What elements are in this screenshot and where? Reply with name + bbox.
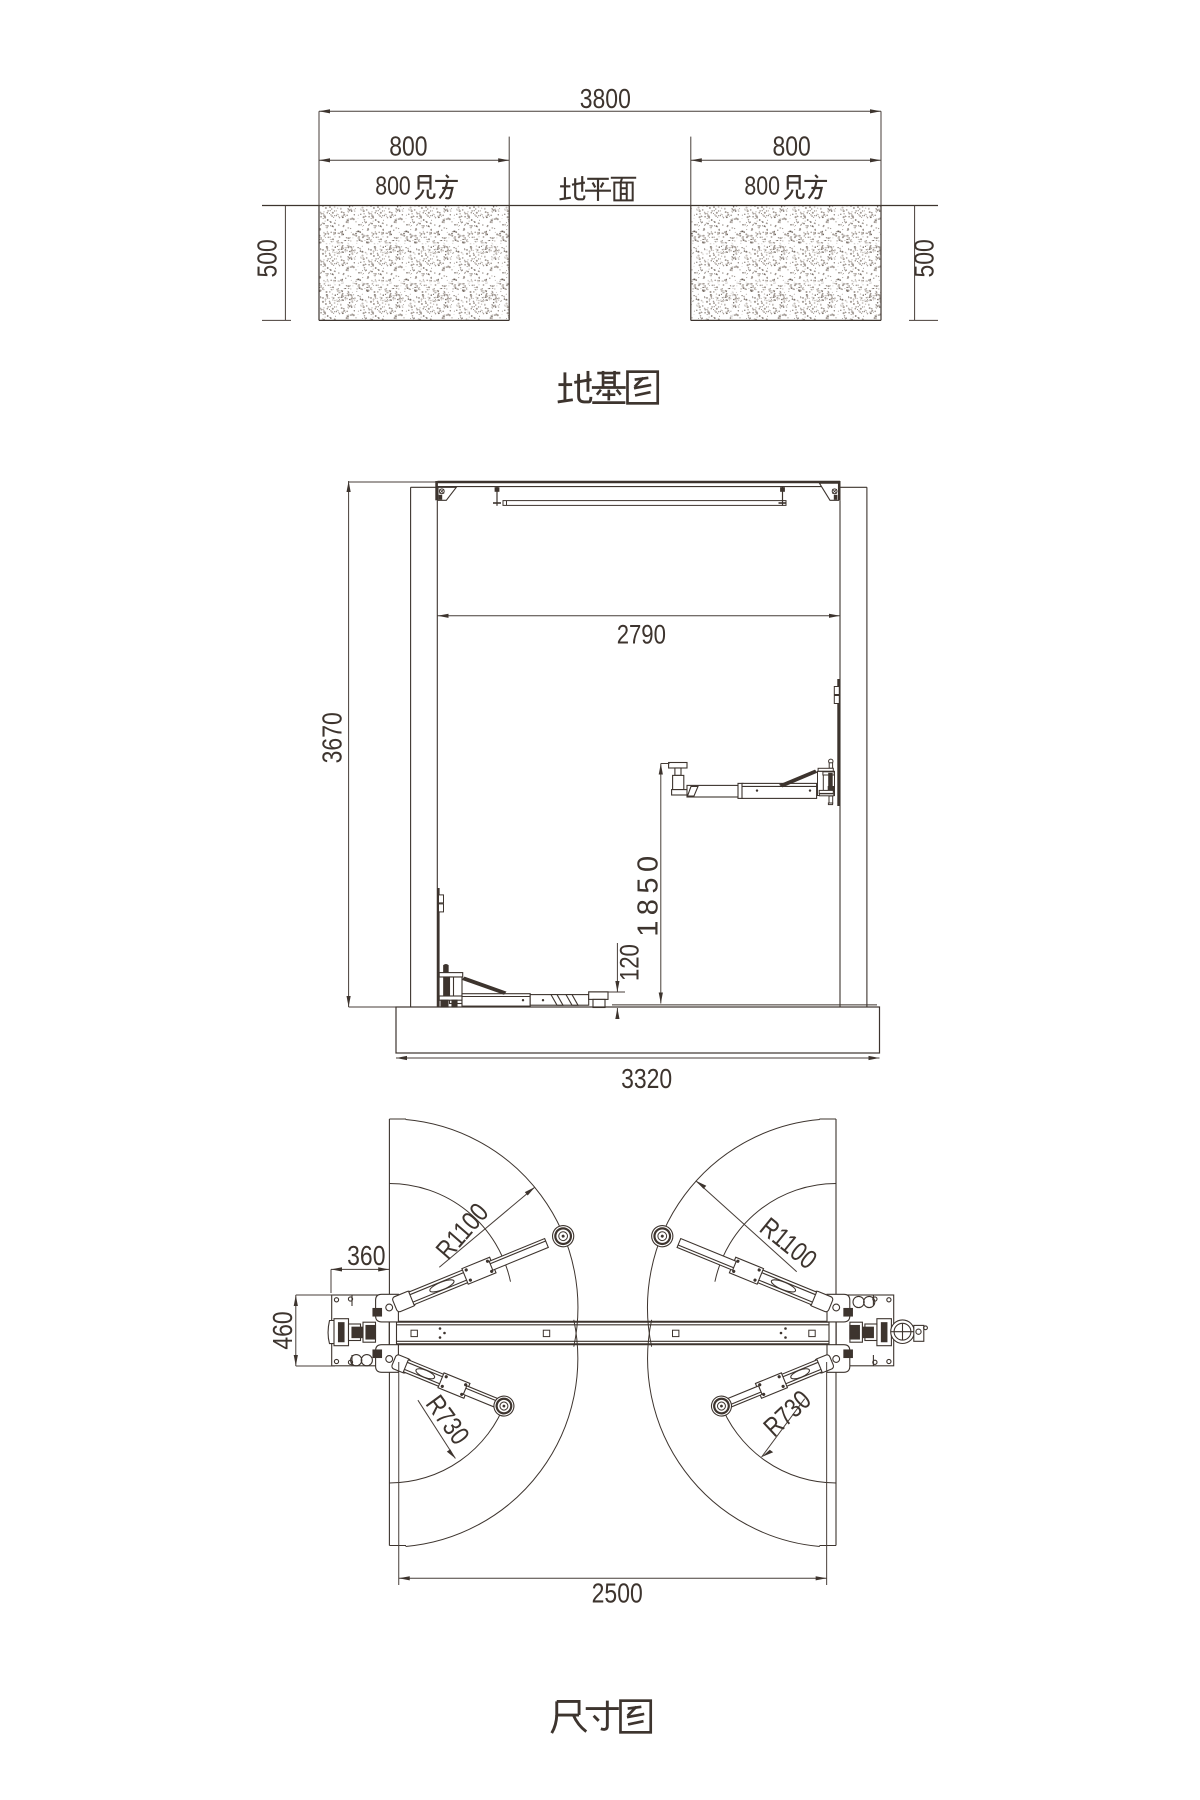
svg-text:800: 800: [744, 172, 780, 202]
svg-text:360: 360: [347, 1241, 385, 1272]
svg-text:3670: 3670: [317, 712, 348, 763]
svg-text:500: 500: [909, 239, 940, 277]
svg-text:800: 800: [389, 131, 427, 162]
svg-text:1850: 1850: [633, 856, 665, 937]
svg-text:3320: 3320: [621, 1064, 672, 1095]
svg-text:460: 460: [268, 1311, 299, 1349]
svg-text:R1100: R1100: [754, 1213, 822, 1276]
svg-text:R1100: R1100: [431, 1198, 495, 1265]
svg-text:R730: R730: [419, 1390, 474, 1450]
svg-text:800: 800: [772, 131, 810, 162]
svg-text:800: 800: [375, 172, 411, 202]
svg-text:2790: 2790: [617, 620, 666, 650]
svg-text:3800: 3800: [580, 84, 631, 115]
svg-text:2500: 2500: [592, 1578, 643, 1609]
svg-text:500: 500: [252, 239, 283, 277]
svg-text:120: 120: [616, 944, 646, 981]
